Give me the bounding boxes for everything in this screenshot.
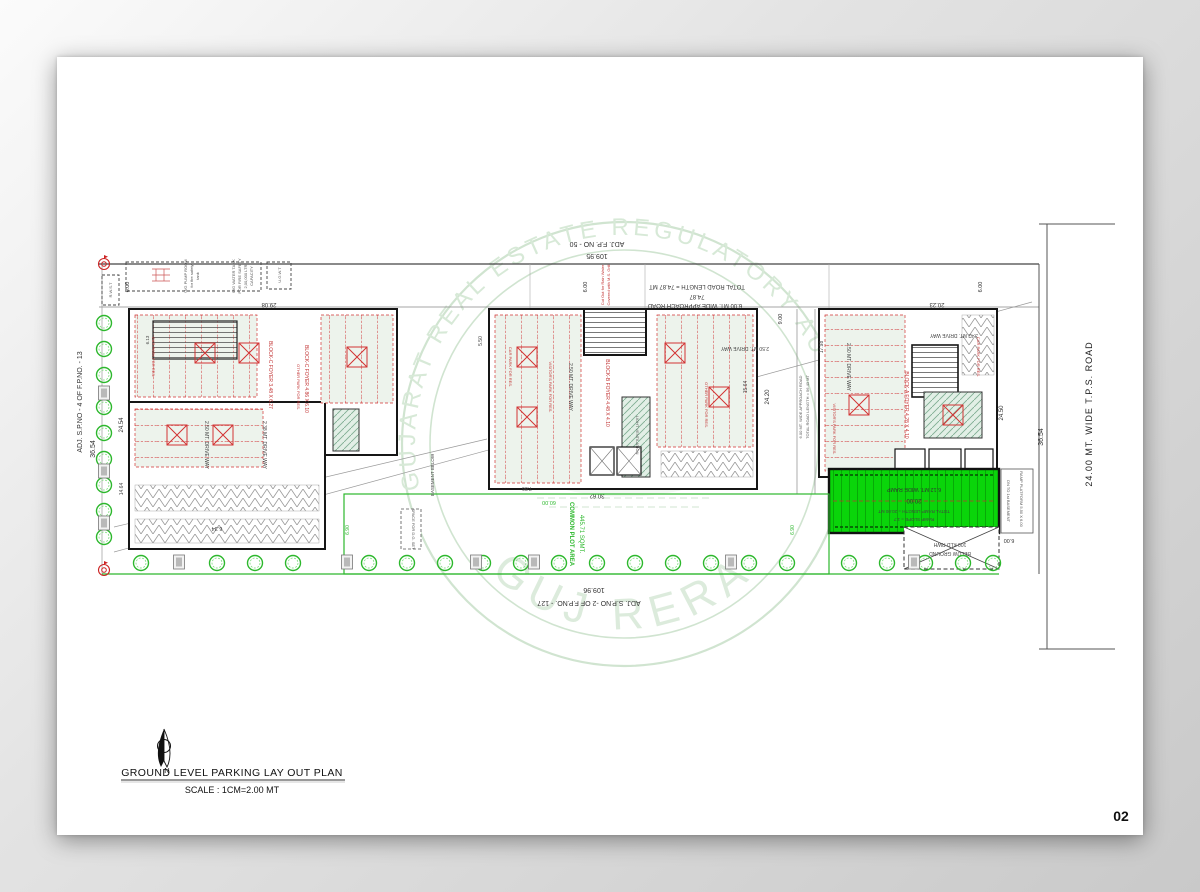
block-b-driveway-2: 2.50 MT. DRIVE WAY <box>720 345 769 351</box>
dim-786: 7.86 <box>522 485 532 491</box>
common-plot-label-1: COMMON PLOT AREA <box>568 502 574 567</box>
tree-icon <box>97 478 112 493</box>
planter-box-icon <box>909 555 920 569</box>
drawing-title: GROUND LEVEL PARKING LAY OUT PLAN <box>121 767 343 779</box>
tree-icon <box>134 556 149 571</box>
fire-tank-label-3: 2,00,000 LTR. <box>243 263 248 288</box>
fire-tank-label-2: FOR FIRE SAFETY <box>237 258 242 294</box>
planter-box-icon <box>726 555 737 569</box>
ramp-dn-label: DN TO 1st BASEMENT <box>1006 480 1011 522</box>
boundary-marker-icon <box>99 561 110 576</box>
ramp-length-dim: 20.00 <box>906 497 922 503</box>
dim-900: 9.00 <box>778 314 784 325</box>
title-block: GROUND LEVEL PARKING LAY OUT PLAN SCALE … <box>121 767 345 795</box>
dim-2450: 24.50 <box>999 405 1005 421</box>
page-number: 02 <box>1113 808 1129 824</box>
dim-1798: 17.98 <box>819 341 825 354</box>
block-c: BLOCK-C FOYER 3.48 X 6.27 BLOCK-C FOYER … <box>119 301 397 549</box>
tree-column-left <box>97 316 112 545</box>
bottom-dimension: 109.96 <box>583 586 605 593</box>
left-adjacent-plot-label: ADJ. S.P.NO - 4 OF F.P.NO. - 13 <box>77 351 84 452</box>
block-b: BLOCK-B FOYER 4.48 X 4.10 LIGHT VENTILAT… <box>478 309 769 498</box>
pump-room-label-3: tank <box>195 272 200 280</box>
tree-icon <box>400 556 415 571</box>
planter-box-icon <box>342 555 353 569</box>
dim-2908: 29.08 <box>261 301 277 307</box>
dim-600: 6.00 <box>583 282 589 293</box>
dg-set-label: SPACE FOR D.G. SET <box>411 508 416 550</box>
tree-icon <box>97 368 112 383</box>
tree-icon <box>210 556 225 571</box>
pump-room-label-1: U/G PUMP ROOM <box>183 259 188 292</box>
left-dimension: 36.54 <box>90 440 97 458</box>
site-plan-svg: GUJARAT REAL ESTATE REGULATORY AUTHORITY… <box>57 57 1143 835</box>
block-c-foyer-1: BLOCK-C FOYER 3.48 X 6.27 <box>267 341 273 409</box>
dim-690: 6.90 <box>345 525 351 535</box>
dim-1564: 15.64 <box>743 381 749 394</box>
tree-row-bottom <box>134 555 1001 571</box>
tree-icon <box>628 556 643 571</box>
block-b-park-label-1: CAR PARK FOR RES. <box>508 347 513 387</box>
basement-below-label: BASEMENT BELOW <box>430 453 435 496</box>
dim-550: 5.50 <box>478 336 484 346</box>
tree-icon <box>780 556 795 571</box>
planter-box-icon <box>471 555 482 569</box>
block-c-driveway-1: 2.50 MT. DRIVE WAY <box>203 421 209 470</box>
tps-road-label: 24.00 MT. WIDE T.P.S. ROAD <box>1084 341 1094 486</box>
road-length-dim: 74.87 <box>689 293 705 299</box>
block-c-park-label-1: CAR PARK FOR RES. <box>151 337 156 377</box>
tree-icon <box>666 556 681 571</box>
common-plot-label-2: 445.71 SQMT. <box>578 515 584 554</box>
tree-icon <box>438 556 453 571</box>
planter-box-icon <box>174 555 185 569</box>
ramp-platform-label: RAMP PLATFORM 5.50 X 6.00 <box>1019 471 1024 527</box>
side-road-label: 6.00 MT. WIDE APPROACH ROAD <box>798 375 803 438</box>
drawing-sheet: GUJARAT REAL ESTATE REGULATORY AUTHORITY… <box>57 57 1143 835</box>
tree-icon <box>842 556 857 571</box>
dim-600: 6.00 <box>978 282 984 293</box>
approach-road-label: 6.00 MT. WIDE APPROACH ROAD <box>647 302 742 308</box>
pump-room-label-2: for fire safety <box>189 264 194 287</box>
block-b-vent-shaft-label: LIGHT VENTILATION <box>635 416 640 455</box>
block-a-park-label-1: VISITOR'S PARK FOR RES. <box>832 403 837 454</box>
dim-600: 6.00 <box>1004 537 1015 543</box>
dim-6000: 60.00 <box>542 499 556 505</box>
tree-icon <box>552 556 567 571</box>
block-b-park-label-2: VISITOR'S PARK FOR RES. <box>548 361 553 412</box>
boundary-marker-icon <box>99 255 110 270</box>
block-c-park-label-2: OTHER PARK FOR RES. <box>296 364 301 410</box>
ramp-slope-label: RAMP SLOPE = 1:7 <box>893 517 934 522</box>
block-b-foyer: BLOCK-B FOYER 4.48 X 4.10 <box>604 359 610 427</box>
block-a-foyer: BLOCK-A FOYER 4.28 X 4.10 <box>903 371 909 438</box>
tree-icon <box>362 556 377 571</box>
road-total-length: TOTAL ROAD LENGTH = 74.87 MT <box>649 283 745 289</box>
tree-icon <box>742 556 757 571</box>
right-dimension: 36.54 <box>1038 428 1045 446</box>
block-c-driveway-2: 2.38 MT. DRIVE WAY <box>261 421 267 470</box>
ramp-total-length: TOTAL RAMP LENGTH = 20.00 MT <box>878 509 950 514</box>
drawing-scale: SCALE : 1CM=2.00 MT <box>185 785 280 795</box>
tree-icon <box>248 556 263 571</box>
block-b-driveway-1: 2.50 MT. DRIVE WAY <box>567 363 573 412</box>
dim-2420: 24.20 <box>765 389 771 405</box>
dim-2454: 24.54 <box>119 417 125 433</box>
tree-icon <box>590 556 605 571</box>
top-dimension: 109.95 <box>586 252 608 259</box>
tree-icon <box>97 400 112 415</box>
block-c-foyer-2: BLOCK-C FOYER 4.86 X 6.10 <box>303 345 309 413</box>
planter-box-icon <box>99 386 110 400</box>
block-a-park-label-2: CAR PARK FOR RES. <box>976 337 981 377</box>
dim-634: 6.34 <box>212 525 223 531</box>
fire-tank-label-4: CAPACITY <box>249 266 254 286</box>
block-b-park-label-3: OTHER PARK FOR RES. <box>704 382 709 428</box>
block-a-driveway-2: 3.42 MT. DRIVE WAY <box>929 332 978 338</box>
block-a-driveway-1: 2.50 MT. DRIVE WAY <box>845 343 851 392</box>
planter-box-icon <box>99 464 110 478</box>
planter-box-icon <box>529 555 540 569</box>
tree-icon <box>286 556 301 571</box>
dim-3062: 30.62 <box>589 492 605 498</box>
ugwt-label: U.G.W.T <box>277 267 282 283</box>
dim-2023: 20.23 <box>929 301 945 307</box>
fire-tank-label-1: U/G WATER TANK <box>231 259 236 293</box>
tree-icon <box>97 342 112 357</box>
top-adjacent-plot-label: ADJ. F.P. NO - 50 <box>570 240 625 247</box>
planter-box-icon <box>99 516 110 530</box>
cutout-note-2: Covered with M.S. Grill <box>606 264 611 305</box>
tree-icon <box>97 426 112 441</box>
rwst-label: R.W.S.T <box>108 282 113 297</box>
cutout-note-1: Cut Out for Rain Water <box>600 264 605 305</box>
ramp-width-label: 6.12 MT. WIDE RAMP <box>886 486 941 492</box>
tree-icon <box>97 530 112 545</box>
dim-613: 6.13 <box>145 335 150 344</box>
dim-690: 6.90 <box>790 525 796 535</box>
tree-icon <box>97 316 112 331</box>
dim-1464: 14.64 <box>119 483 125 496</box>
block-a: BLOCK-A FOYER 4.28 X 4.10 2.50 MT. DRIVE… <box>819 301 1005 477</box>
rwh-label-1: 100 KLD RWH <box>933 541 966 547</box>
side-road-total: TOTAL ROAD LENGTH = 56.43 MT <box>805 375 810 439</box>
tree-icon <box>880 556 895 571</box>
bottom-adjacent-plot-label: ADJ. S.P.NO -2 OF F.P.NO. - 127 <box>537 599 640 606</box>
